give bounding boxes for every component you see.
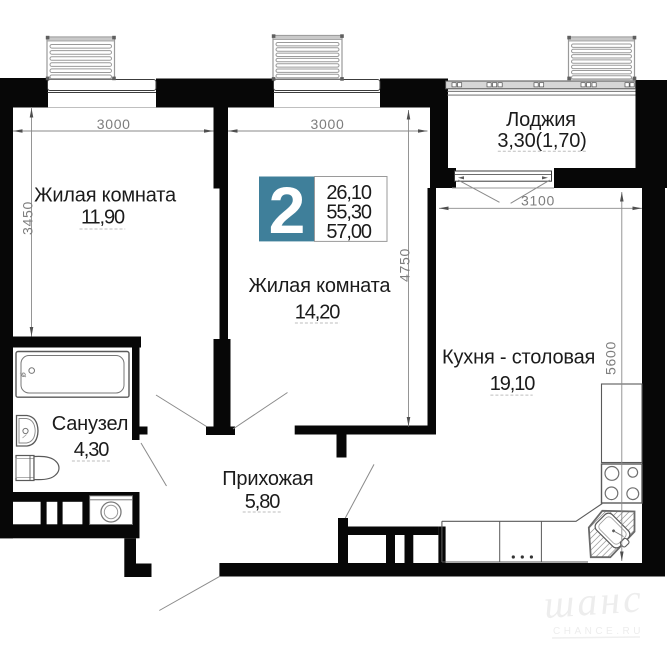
svg-text:19,10: 19,10 [490, 373, 536, 395]
svg-text:4,30: 4,30 [74, 439, 110, 461]
svg-text:Санузел: Санузел [52, 413, 129, 435]
svg-text:Жилая комната: Жилая комната [34, 185, 177, 207]
svg-text:3,30(1,70): 3,30(1,70) [497, 130, 586, 152]
svg-text:11,90: 11,90 [81, 207, 125, 229]
svg-text:3000: 3000 [311, 116, 345, 132]
svg-text:3000: 3000 [97, 116, 131, 132]
svg-text:Прихожая: Прихожая [222, 468, 313, 490]
svg-text:Кухня - столовая: Кухня - столовая [442, 347, 595, 369]
svg-text:CHANCE.RU: CHANCE.RU [553, 626, 644, 637]
svg-text:5600: 5600 [603, 341, 619, 375]
svg-text:5,80: 5,80 [245, 491, 281, 513]
svg-text:14,20: 14,20 [295, 302, 341, 324]
svg-text:57,00: 57,00 [326, 221, 372, 243]
svg-text:Лоджия: Лоджия [506, 109, 576, 131]
svg-text:4750: 4750 [397, 248, 413, 282]
svg-text:2: 2 [269, 173, 306, 247]
svg-text:Жилая комната: Жилая комната [248, 275, 391, 297]
svg-text:3100: 3100 [521, 193, 555, 209]
svg-text:шанс: шанс [542, 575, 645, 627]
